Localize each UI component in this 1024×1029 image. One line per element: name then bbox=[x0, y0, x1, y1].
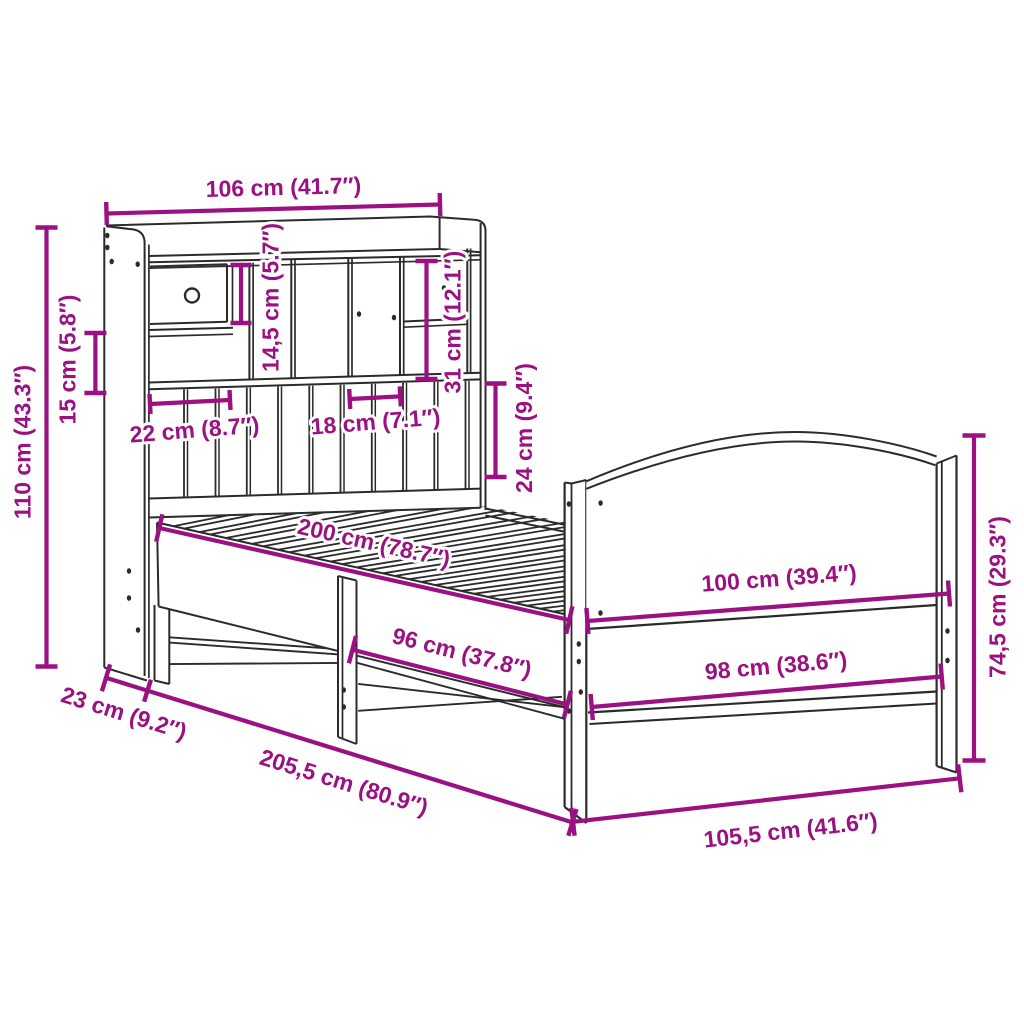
svg-text:74,5 cm (29.3″): 74,5 cm (29.3″) bbox=[985, 516, 1011, 678]
svg-text:15 cm (5.8″): 15 cm (5.8″) bbox=[55, 295, 81, 425]
svg-text:106 cm (41.7″): 106 cm (41.7″) bbox=[205, 172, 361, 202]
svg-text:14,5 cm (5.7″): 14,5 cm (5.7″) bbox=[258, 223, 284, 372]
svg-text:110 cm (43.3″): 110 cm (43.3″) bbox=[10, 365, 36, 519]
svg-text:31 cm (12.1″): 31 cm (12.1″) bbox=[440, 251, 466, 394]
svg-text:24 cm (9.4″): 24 cm (9.4″) bbox=[511, 363, 537, 493]
